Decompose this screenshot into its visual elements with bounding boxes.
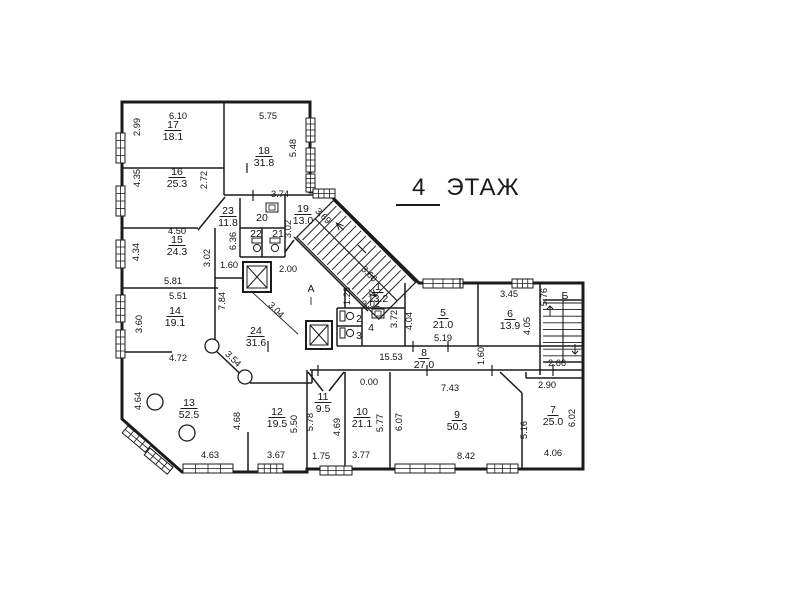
room-number: 24 <box>250 325 262 337</box>
room-area: 52.5 <box>179 409 200 421</box>
room-number: 7 <box>550 404 556 416</box>
dim-label: 4.34 <box>131 243 141 261</box>
room-area: 31.6 <box>246 337 267 349</box>
room-area: 13.0 <box>293 215 314 227</box>
cell-label: 3 <box>356 330 362 342</box>
room-area: 31.8 <box>254 157 275 169</box>
staircase-a <box>297 200 416 319</box>
dim-label: 4.72 <box>169 353 187 363</box>
dim-label: 5.50 <box>289 415 299 433</box>
window-segment <box>183 464 233 473</box>
labels-group: 1718.11831.81625.31524.31419.11352.51219… <box>131 111 577 461</box>
window-segment <box>116 295 125 322</box>
dim-label: 5.75 <box>259 111 277 121</box>
window-segment <box>116 240 125 268</box>
room-number: 19 <box>297 203 309 215</box>
room-area: 19.1 <box>165 317 186 329</box>
dim-label: 2.00 <box>279 264 297 274</box>
dim-label: 8.42 <box>457 451 475 461</box>
room-area: 21.1 <box>352 418 373 430</box>
sink-icon <box>266 203 278 212</box>
stair-stringer <box>315 219 397 301</box>
floor-plan-page: 4ЭТАЖ 1718.11831.81625.31524.31419.11352… <box>0 0 809 614</box>
toilet-icon <box>252 238 262 252</box>
room-area: 25.0 <box>543 416 564 428</box>
dim-label: 6.07 <box>394 413 404 431</box>
dim-label: 5.48 <box>288 139 298 157</box>
dim-label: 7.84 <box>217 292 227 310</box>
dim-label: 1.60 <box>476 347 486 365</box>
dim-label: 4.68 <box>232 412 242 430</box>
toilet-icon <box>340 328 354 338</box>
dim-label: 6.10 <box>169 111 187 121</box>
room-area: 50.3 <box>447 421 468 433</box>
dim-label: 6.02 <box>567 409 577 427</box>
room-area: 13.9 <box>500 320 521 332</box>
toilet-icon <box>270 238 280 252</box>
room-number: 23 <box>222 205 234 217</box>
window-segment <box>258 464 283 473</box>
room-area: 18.1 <box>163 131 184 143</box>
dim-label: 3.74 <box>271 189 289 199</box>
dim-label: 1.60 <box>220 260 238 270</box>
dim-label: 6.36 <box>228 232 238 250</box>
stair-direction-arrow <box>547 306 553 316</box>
dim-label: 4.69 <box>332 418 342 436</box>
dim-label: 3.60 <box>134 315 144 333</box>
dim-label: 2.66 <box>548 358 566 368</box>
room-number: 16 <box>171 166 183 178</box>
window-segment <box>116 186 125 216</box>
room-number: 6 <box>507 308 513 320</box>
staircase-b <box>543 300 583 362</box>
dim-label: 4.05 <box>522 317 532 335</box>
floor-plan-svg: 1718.11831.81625.31524.31419.11352.51219… <box>0 0 809 614</box>
window-segment <box>487 464 518 473</box>
elevator-shaft <box>243 262 271 292</box>
opening-tick <box>358 245 366 253</box>
dim-label: 3.54 <box>223 349 243 369</box>
room-number: 11 <box>318 391 329 403</box>
window-segment <box>313 189 335 198</box>
window-segment <box>395 464 455 473</box>
window-segment <box>306 148 315 172</box>
toilet-icon <box>340 311 354 321</box>
room-area: 27.0 <box>414 359 435 371</box>
room-number: 5 <box>440 307 446 319</box>
elevator-shaft <box>306 321 332 349</box>
room-area: 21.0 <box>433 319 454 331</box>
room-area: 9.5 <box>316 403 331 415</box>
window-segment <box>116 330 125 358</box>
window-segment <box>320 466 352 475</box>
column <box>147 394 163 410</box>
dim-label: 2.99 <box>132 118 142 136</box>
dim-label: 15.53 <box>379 352 402 362</box>
dim-label: 3.02 <box>362 299 380 309</box>
room-area: 24.3 <box>167 246 188 258</box>
cell-label: 22 <box>250 228 262 240</box>
room-area: 19.5 <box>267 418 288 430</box>
window-segment <box>306 118 315 142</box>
room-number: 12 <box>271 406 283 418</box>
dim-label: 4.35 <box>132 169 142 187</box>
dim-label: 5.16 <box>519 421 529 439</box>
cell-label: 20 <box>256 212 268 224</box>
room-area: 25.3 <box>167 178 188 190</box>
column <box>238 370 252 384</box>
cell-label: 2 <box>356 313 362 325</box>
dim-label: 4.63 <box>201 450 219 460</box>
column <box>179 425 195 441</box>
dim-label: 7.43 <box>441 383 459 393</box>
dim-label: 5.81 <box>164 276 182 286</box>
dim-label: 2.72 <box>199 171 209 189</box>
dim-label: 4.50 <box>168 226 186 236</box>
room-number: 10 <box>356 406 368 418</box>
dim-label: 5.51 <box>169 291 187 301</box>
dim-label: 3.04 <box>266 300 286 320</box>
dim-label: 0.00 <box>360 377 378 387</box>
dim-label: 4.64 <box>133 392 143 410</box>
cell-label: Б <box>562 290 569 302</box>
room-number: 14 <box>169 305 181 317</box>
room-number: 9 <box>454 409 460 421</box>
dim-label: 1.75 <box>312 451 330 461</box>
column <box>205 339 219 353</box>
dim-label: 1.28 <box>342 287 352 305</box>
window-segment <box>512 279 533 288</box>
dim-label: 5.78 <box>305 413 315 431</box>
dim-label: 3.45 <box>500 289 518 299</box>
room-number: 18 <box>258 145 270 157</box>
dim-label: 5.77 <box>375 414 385 432</box>
dim-label: 3.67 <box>267 450 285 460</box>
window-segment <box>423 279 463 288</box>
cell-label: 4 <box>368 322 374 334</box>
room-number: 8 <box>421 347 427 359</box>
dim-label: 3.02 <box>202 249 212 267</box>
dim-label: 5.19 <box>434 333 452 343</box>
dim-label: 5.76 <box>539 288 549 306</box>
room-number: 13 <box>183 397 195 409</box>
window-segment <box>116 133 125 163</box>
cell-label: А <box>307 283 314 295</box>
dim-label: 3.72 <box>389 310 399 328</box>
dim-label: 2.90 <box>538 380 556 390</box>
dim-label: 4.06 <box>544 448 562 458</box>
dim-label: 3.02 <box>283 220 293 238</box>
room-number: 1 <box>375 281 381 293</box>
dim-label: 3.77 <box>352 450 370 460</box>
dim-label: 4.04 <box>404 312 414 330</box>
room-area: 11.8 <box>218 217 238 229</box>
